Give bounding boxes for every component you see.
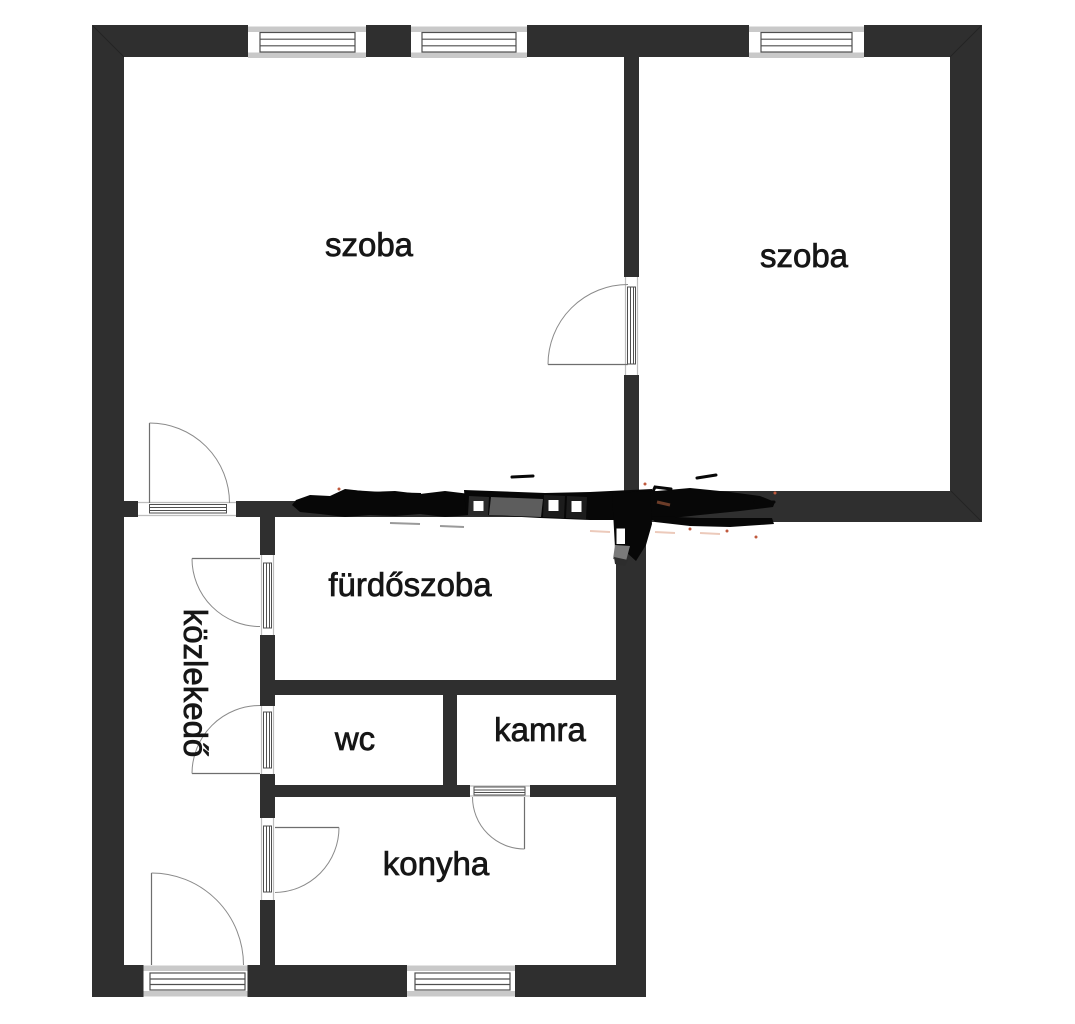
svg-text:szoba: szoba <box>325 226 414 263</box>
svg-text:kamra: kamra <box>494 711 586 748</box>
svg-text:szoba: szoba <box>760 237 849 274</box>
svg-text:fürdőszoba: fürdőszoba <box>328 566 492 603</box>
svg-text:wc: wc <box>334 720 375 757</box>
svg-text:közlekedő: közlekedő <box>177 609 214 758</box>
svg-text:konyha: konyha <box>383 845 490 882</box>
